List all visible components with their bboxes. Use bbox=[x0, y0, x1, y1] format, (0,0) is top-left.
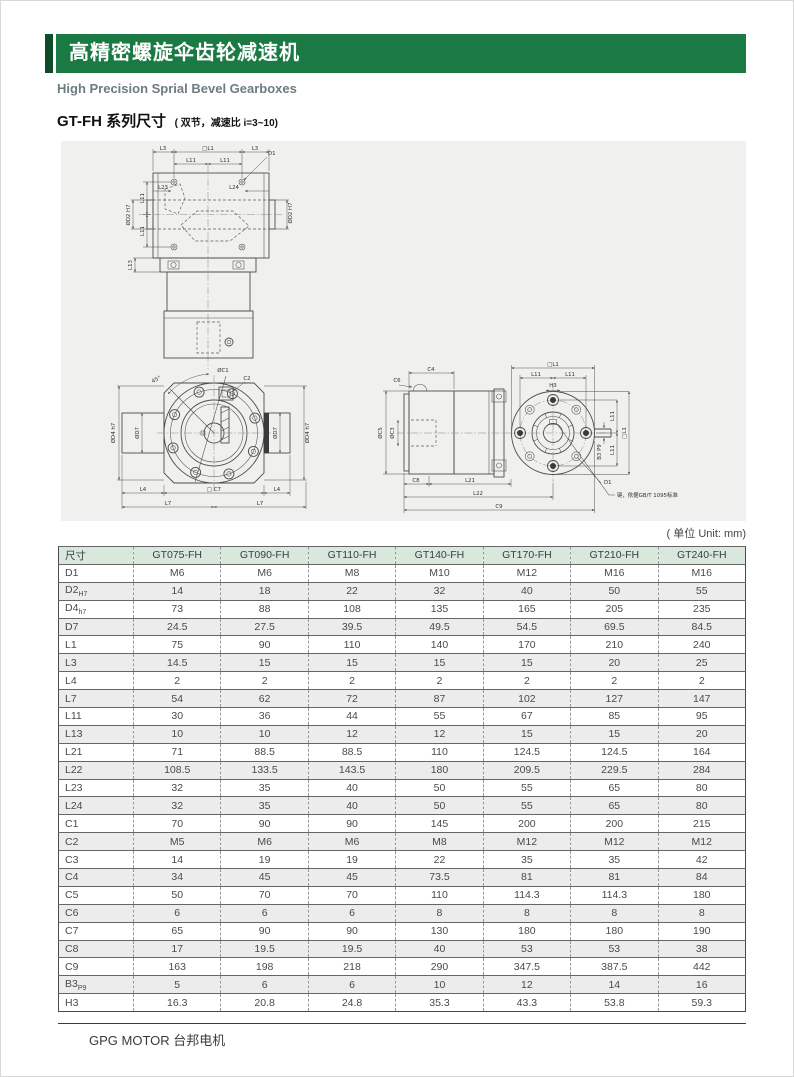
dimension-value: M16 bbox=[658, 564, 745, 582]
dimension-value: 40 bbox=[396, 940, 483, 958]
dimension-value: 53.8 bbox=[571, 994, 658, 1012]
dimension-value: 124.5 bbox=[483, 743, 570, 761]
dimension-value: 6 bbox=[221, 976, 308, 994]
table-header-row: 尺寸GT075-FHGT090-FHGT110-FHGT140-FHGT170-… bbox=[59, 547, 746, 565]
dimension-value: 73 bbox=[134, 600, 221, 618]
dimension-value: 14 bbox=[134, 851, 221, 869]
dimension-value: 15 bbox=[221, 654, 308, 672]
dimension-value: 235 bbox=[658, 600, 745, 618]
table-row: L754627287102127147 bbox=[59, 690, 746, 708]
dimension-value: 84.5 bbox=[658, 618, 745, 636]
dimension-value: 35 bbox=[483, 851, 570, 869]
dim-l11-top-left: L11 bbox=[531, 372, 541, 378]
dimension-value: 84 bbox=[658, 869, 745, 887]
dimension-value: 19.5 bbox=[221, 940, 308, 958]
dimension-table-wrap: 尺寸GT075-FHGT090-FHGT110-FHGT140-FHGT170-… bbox=[58, 546, 746, 1012]
table-row: D724.527.539.549.554.569.584.5 bbox=[59, 618, 746, 636]
dimension-value: 2 bbox=[483, 672, 570, 690]
dimension-value: 49.5 bbox=[396, 618, 483, 636]
top-view: L3 □L1 L3 D1 L11 L11 L23 L24 L11 bbox=[125, 146, 294, 369]
dimension-value: 130 bbox=[396, 922, 483, 940]
dimension-value: 200 bbox=[483, 815, 570, 833]
dimension-value: 32 bbox=[396, 582, 483, 600]
dimension-value: 90 bbox=[221, 922, 308, 940]
dimension-value: 16 bbox=[658, 976, 745, 994]
column-header-model: GT210-FH bbox=[571, 547, 658, 565]
dimension-value: 114.3 bbox=[483, 886, 570, 904]
table-row: D2H714182232405055 bbox=[59, 582, 746, 600]
dimension-value: 8 bbox=[658, 904, 745, 922]
dimension-value: 72 bbox=[308, 690, 395, 708]
dimension-label: C1 bbox=[59, 815, 134, 833]
column-header-model: GT110-FH bbox=[308, 547, 395, 565]
dimension-value: 8 bbox=[571, 904, 658, 922]
table-row: L217188.588.5110124.5124.5164 bbox=[59, 743, 746, 761]
dimension-label: D1 bbox=[59, 564, 134, 582]
dimension-label: H3 bbox=[59, 994, 134, 1012]
dimension-value: 102 bbox=[483, 690, 570, 708]
dimension-label: C9 bbox=[59, 958, 134, 976]
dim-l4-right: L4 bbox=[274, 487, 281, 493]
dimension-value: 55 bbox=[396, 708, 483, 726]
dimension-value: 88.5 bbox=[221, 743, 308, 761]
dimension-value: 18 bbox=[221, 582, 308, 600]
dimension-value: 39.5 bbox=[308, 618, 395, 636]
section-note: ( 双节，减速比 i=3~10) bbox=[175, 118, 278, 129]
dimension-value: 12 bbox=[308, 725, 395, 743]
dimension-value: 32 bbox=[134, 779, 221, 797]
dimension-value: 2 bbox=[221, 672, 308, 690]
dimension-value: 124.5 bbox=[571, 743, 658, 761]
unit-note: ( 单位 Unit: mm) bbox=[61, 525, 746, 541]
dimension-value: 38 bbox=[658, 940, 745, 958]
dimension-label: C4 bbox=[59, 869, 134, 887]
dimension-value: 55 bbox=[483, 797, 570, 815]
dimension-value: M6 bbox=[134, 564, 221, 582]
dimension-value: 180 bbox=[396, 761, 483, 779]
dimension-value: 54 bbox=[134, 690, 221, 708]
dim-d4-left: ØD4 h7 bbox=[110, 423, 117, 443]
dimension-label: D2H7 bbox=[59, 582, 134, 600]
dimension-value: 387.5 bbox=[571, 958, 658, 976]
dim-l11-right-lower: L11 bbox=[610, 445, 616, 455]
dimension-value: 55 bbox=[658, 582, 745, 600]
dimension-value: M6 bbox=[221, 833, 308, 851]
dim-45deg: 45° bbox=[151, 375, 163, 385]
dimension-value: 62 bbox=[221, 690, 308, 708]
dimension-label: L13 bbox=[59, 725, 134, 743]
dim-c4: C4 bbox=[427, 367, 435, 373]
dimension-value: 190 bbox=[658, 922, 745, 940]
table-row: C434454573.5818184 bbox=[59, 869, 746, 887]
column-header-model: GT090-FH bbox=[221, 547, 308, 565]
section-heading: GT-FH 系列尺寸 ( 双节，减速比 i=3~10) bbox=[57, 110, 278, 131]
dimension-value: 135 bbox=[396, 600, 483, 618]
dimension-value: 110 bbox=[396, 886, 483, 904]
key-standard-note: 键，依据GB/T 1095标准 bbox=[617, 491, 678, 499]
dimension-value: 25 bbox=[658, 654, 745, 672]
table-row: B3P956610121416 bbox=[59, 976, 746, 994]
dimension-value: 70 bbox=[134, 815, 221, 833]
table-row: H316.320.824.835.343.353.859.3 bbox=[59, 994, 746, 1012]
dimension-value: 10 bbox=[396, 976, 483, 994]
dimension-value: 65 bbox=[134, 922, 221, 940]
dimension-label: L1 bbox=[59, 636, 134, 654]
dimension-value: 73.5 bbox=[396, 869, 483, 887]
dim-d4-right: ØD4 h7 bbox=[304, 423, 311, 443]
table-row: C81719.519.540535338 bbox=[59, 940, 746, 958]
table-row: L1130364455678595 bbox=[59, 708, 746, 726]
dimension-value: 19.5 bbox=[308, 940, 395, 958]
dimension-value: 108 bbox=[308, 600, 395, 618]
dimension-value: 70 bbox=[221, 886, 308, 904]
dim-l13: L13 bbox=[128, 260, 134, 270]
dimension-value: M12 bbox=[483, 833, 570, 851]
dimension-label: L7 bbox=[59, 690, 134, 708]
dimension-value: 2 bbox=[134, 672, 221, 690]
dimension-value: 45 bbox=[308, 869, 395, 887]
dimension-value: M12 bbox=[571, 833, 658, 851]
dimension-value: 6 bbox=[221, 904, 308, 922]
dimension-value: 81 bbox=[571, 869, 658, 887]
dim-c9: C9 bbox=[495, 504, 503, 510]
dimension-label: L4 bbox=[59, 672, 134, 690]
dimension-label: L21 bbox=[59, 743, 134, 761]
dim-c2: C2 bbox=[243, 376, 250, 382]
dimension-value: 2 bbox=[308, 672, 395, 690]
dimension-value: 75 bbox=[134, 636, 221, 654]
column-header-model: GT170-FH bbox=[483, 547, 570, 565]
footer-divider bbox=[58, 1023, 746, 1024]
dimension-value: 53 bbox=[571, 940, 658, 958]
dim-l21: L21 bbox=[465, 478, 475, 484]
side-view: C4 C6 □L1 L11 L11 H3 ØC5 bbox=[377, 362, 678, 513]
dim-l1-square-right: □L1 bbox=[622, 427, 628, 439]
dimension-value: 15 bbox=[571, 725, 658, 743]
dimension-label: L3 bbox=[59, 654, 134, 672]
dim-c5: ØC5 bbox=[377, 427, 384, 438]
dimension-value: 205 bbox=[571, 600, 658, 618]
dimension-value: 16.3 bbox=[134, 994, 221, 1012]
dimension-value: 12 bbox=[396, 725, 483, 743]
dimension-value: 27.5 bbox=[221, 618, 308, 636]
dimension-label: C2 bbox=[59, 833, 134, 851]
dimension-value: 240 bbox=[658, 636, 745, 654]
dimension-value: 114.3 bbox=[571, 886, 658, 904]
page-subtitle: High Precision Sprial Bevel Gearboxes bbox=[57, 81, 297, 96]
dimension-value: 215 bbox=[658, 815, 745, 833]
dimension-value: 88 bbox=[221, 600, 308, 618]
table-row: C66668888 bbox=[59, 904, 746, 922]
dimension-value: 80 bbox=[658, 797, 745, 815]
dim-l11-top-left: L11 bbox=[186, 158, 196, 164]
dimension-value: 69.5 bbox=[571, 618, 658, 636]
dimension-value: 12 bbox=[483, 976, 570, 994]
technical-drawings: L3 □L1 L3 D1 L11 L11 L23 L24 L11 bbox=[61, 141, 746, 521]
dimension-value: M6 bbox=[308, 833, 395, 851]
spec-table-body: D1M6M6M8M10M12M16M16D2H714182232405055D4… bbox=[59, 564, 746, 1011]
dim-l24: L24 bbox=[229, 185, 239, 191]
dimension-value: 20.8 bbox=[221, 994, 308, 1012]
dim-l7-right: L7 bbox=[257, 501, 263, 507]
dim-l4-left: L4 bbox=[140, 487, 147, 493]
dimension-label: C8 bbox=[59, 940, 134, 958]
dimension-value: 170 bbox=[483, 636, 570, 654]
dim-d7-right: ØD7 bbox=[272, 427, 279, 439]
dim-c1: ØC1 bbox=[217, 367, 228, 374]
dimension-value: 8 bbox=[483, 904, 570, 922]
dimension-value: 30 bbox=[134, 708, 221, 726]
dimension-value: 108.5 bbox=[134, 761, 221, 779]
table-row: L314.5151515152025 bbox=[59, 654, 746, 672]
dimension-value: M5 bbox=[134, 833, 221, 851]
column-header-model: GT240-FH bbox=[658, 547, 745, 565]
dimension-label: L22 bbox=[59, 761, 134, 779]
dimension-label: D4h7 bbox=[59, 600, 134, 618]
dimension-value: 44 bbox=[308, 708, 395, 726]
dimension-value: 164 bbox=[658, 743, 745, 761]
dim-d2-right: ØD2 H7 bbox=[287, 202, 294, 223]
dimension-value: M6 bbox=[221, 564, 308, 582]
table-row: C5507070110114.3114.3180 bbox=[59, 886, 746, 904]
dimension-value: 53 bbox=[483, 940, 570, 958]
dim-d7-left: ØD7 bbox=[134, 427, 141, 439]
dimension-value: 14.5 bbox=[134, 654, 221, 672]
dimension-value: M10 bbox=[396, 564, 483, 582]
dimension-value: 88.5 bbox=[308, 743, 395, 761]
dimension-value: 59.3 bbox=[658, 994, 745, 1012]
dimension-label: B3P9 bbox=[59, 976, 134, 994]
dimension-value: 43.3 bbox=[483, 994, 570, 1012]
dimension-value: 143.5 bbox=[308, 761, 395, 779]
dimension-value: 198 bbox=[221, 958, 308, 976]
dimension-value: M12 bbox=[658, 833, 745, 851]
dim-l11-right-upper: L11 bbox=[610, 411, 616, 421]
dimension-value: 42 bbox=[658, 851, 745, 869]
dimension-label: C7 bbox=[59, 922, 134, 940]
dimension-value: 210 bbox=[571, 636, 658, 654]
dimension-value: 65 bbox=[571, 797, 658, 815]
table-row: D1M6M6M8M10M12M16M16 bbox=[59, 564, 746, 582]
dimension-value: 284 bbox=[658, 761, 745, 779]
dimension-value: 40 bbox=[308, 779, 395, 797]
dimension-value: 8 bbox=[396, 904, 483, 922]
dim-c3: ØC3 bbox=[389, 427, 396, 438]
dimension-value: 2 bbox=[571, 672, 658, 690]
dim-l7-left: L7 bbox=[165, 501, 171, 507]
dimension-value: 81 bbox=[483, 869, 570, 887]
table-row: L17590110140170210240 bbox=[59, 636, 746, 654]
dimension-value: 165 bbox=[483, 600, 570, 618]
dimension-value: M8 bbox=[308, 564, 395, 582]
dimension-value: 71 bbox=[134, 743, 221, 761]
dimension-table: 尺寸GT075-FHGT090-FHGT110-FHGT140-FHGT170-… bbox=[58, 546, 746, 1012]
front-view: 45° ØC1 C2 ØD7 ØD4 h7 ØD7 bbox=[110, 367, 311, 509]
dimension-value: 140 bbox=[396, 636, 483, 654]
dimension-value: 90 bbox=[221, 636, 308, 654]
dimension-value: 45 bbox=[221, 869, 308, 887]
dimension-value: 85 bbox=[571, 708, 658, 726]
dimension-value: 229.5 bbox=[571, 761, 658, 779]
dimension-value: 90 bbox=[221, 815, 308, 833]
dimension-value: 133.5 bbox=[221, 761, 308, 779]
dimension-value: 6 bbox=[134, 904, 221, 922]
dim-l11-left-upper: L11 bbox=[140, 193, 146, 203]
dimension-value: 20 bbox=[658, 725, 745, 743]
dimension-value: 347.5 bbox=[483, 958, 570, 976]
section-title: GT-FH 系列尺寸 bbox=[57, 113, 166, 130]
table-row: L2432354050556580 bbox=[59, 797, 746, 815]
dimension-value: 290 bbox=[396, 958, 483, 976]
dimension-label: L23 bbox=[59, 779, 134, 797]
dimension-value: 65 bbox=[571, 779, 658, 797]
dimension-value: 6 bbox=[308, 904, 395, 922]
dimension-value: 15 bbox=[483, 725, 570, 743]
dimension-value: 35 bbox=[571, 851, 658, 869]
dimension-value: 15 bbox=[396, 654, 483, 672]
column-header-model: GT140-FH bbox=[396, 547, 483, 565]
dimension-value: 20 bbox=[571, 654, 658, 672]
dimension-value: 95 bbox=[658, 708, 745, 726]
dimension-value: 40 bbox=[483, 582, 570, 600]
dimension-label: L24 bbox=[59, 797, 134, 815]
dim-d2-left: ØD2 H7 bbox=[125, 204, 132, 225]
dimension-value: 442 bbox=[658, 958, 745, 976]
dimension-value: 6 bbox=[308, 976, 395, 994]
footer-brand: GPG MOTOR 台邦电机 bbox=[89, 1030, 225, 1049]
dimension-value: 24.8 bbox=[308, 994, 395, 1012]
dimension-value: 50 bbox=[134, 886, 221, 904]
dimension-value: 90 bbox=[308, 815, 395, 833]
dimension-label: C3 bbox=[59, 851, 134, 869]
dimension-value: 50 bbox=[571, 582, 658, 600]
dim-l3-right: L3 bbox=[252, 146, 258, 152]
dimension-value: 163 bbox=[134, 958, 221, 976]
dimension-value: 10 bbox=[134, 725, 221, 743]
dimension-value: 110 bbox=[308, 636, 395, 654]
dimension-value: 70 bbox=[308, 886, 395, 904]
dimension-value: 19 bbox=[221, 851, 308, 869]
dimension-value: 127 bbox=[571, 690, 658, 708]
table-row: L22108.5133.5143.5180209.5229.5284 bbox=[59, 761, 746, 779]
dimension-value: 54.5 bbox=[483, 618, 570, 636]
dimension-value: 15 bbox=[483, 654, 570, 672]
catalog-page: 高精密螺旋伞齿轮减速机 High Precision Sprial Bevel … bbox=[0, 0, 794, 1077]
dimension-value: M8 bbox=[396, 833, 483, 851]
dim-c8: C8 bbox=[412, 478, 420, 484]
dimension-value: 22 bbox=[396, 851, 483, 869]
dimension-value: 90 bbox=[308, 922, 395, 940]
dimension-value: 14 bbox=[134, 582, 221, 600]
dimension-value: 200 bbox=[571, 815, 658, 833]
dimension-value: 55 bbox=[483, 779, 570, 797]
table-row: C9163198218290347.5387.5442 bbox=[59, 958, 746, 976]
dimension-value: 147 bbox=[658, 690, 745, 708]
dimension-label: C5 bbox=[59, 886, 134, 904]
dim-d1-top: D1 bbox=[268, 151, 276, 157]
dim-l11-left-lower: L11 bbox=[140, 226, 146, 236]
dimension-value: M16 bbox=[571, 564, 658, 582]
dimension-label: L11 bbox=[59, 708, 134, 726]
column-header-dim: 尺寸 bbox=[59, 547, 134, 565]
table-row: D4h77388108135165205235 bbox=[59, 600, 746, 618]
dimension-value: 32 bbox=[134, 797, 221, 815]
dimension-value: 40 bbox=[308, 797, 395, 815]
dimension-value: 19 bbox=[308, 851, 395, 869]
table-row: L42222222 bbox=[59, 672, 746, 690]
dimension-value: 22 bbox=[308, 582, 395, 600]
table-row: C2M5M6M6M8M12M12M12 bbox=[59, 833, 746, 851]
page-title: 高精密螺旋伞齿轮减速机 bbox=[56, 34, 746, 73]
dimension-value: 5 bbox=[134, 976, 221, 994]
dimension-value: 180 bbox=[571, 922, 658, 940]
dimension-value: 50 bbox=[396, 797, 483, 815]
dimension-value: 180 bbox=[658, 886, 745, 904]
dimension-value: 2 bbox=[658, 672, 745, 690]
dim-c6: C6 bbox=[393, 378, 401, 384]
dimension-value: 15 bbox=[308, 654, 395, 672]
dim-h3: H3 bbox=[549, 383, 556, 389]
dimension-value: 35 bbox=[221, 779, 308, 797]
table-row: C314191922353542 bbox=[59, 851, 746, 869]
dimension-value: 14 bbox=[571, 976, 658, 994]
dim-l1-square-top: □L1 bbox=[547, 362, 559, 368]
dimension-label: C6 bbox=[59, 904, 134, 922]
dimension-value: 35.3 bbox=[396, 994, 483, 1012]
dimension-value: 180 bbox=[483, 922, 570, 940]
dimension-value: 34 bbox=[134, 869, 221, 887]
dimension-value: 145 bbox=[396, 815, 483, 833]
dimension-label: D7 bbox=[59, 618, 134, 636]
table-row: L1310101212151520 bbox=[59, 725, 746, 743]
dim-l11-top-right: L11 bbox=[220, 158, 230, 164]
header-accent-bar bbox=[45, 34, 53, 73]
dimension-value: 2 bbox=[396, 672, 483, 690]
dim-l11-top-right: L11 bbox=[565, 372, 575, 378]
dim-d1-side: D1 bbox=[604, 480, 612, 486]
dimension-value: 24.5 bbox=[134, 618, 221, 636]
dimension-value: M12 bbox=[483, 564, 570, 582]
dimension-value: 218 bbox=[308, 958, 395, 976]
dimension-value: 87 bbox=[396, 690, 483, 708]
dim-l23: L23 bbox=[158, 185, 168, 191]
dim-l22: L22 bbox=[473, 491, 483, 497]
dim-l3-left: L3 bbox=[160, 146, 166, 152]
table-row: L2332354050556580 bbox=[59, 779, 746, 797]
dim-l1-square: □L1 bbox=[202, 146, 214, 152]
dimension-value: 80 bbox=[658, 779, 745, 797]
dim-b3: B3 P9 bbox=[597, 444, 603, 460]
dimension-value: 67 bbox=[483, 708, 570, 726]
dimension-value: 110 bbox=[396, 743, 483, 761]
drawing-panel: L3 □L1 L3 D1 L11 L11 L23 L24 L11 bbox=[61, 141, 746, 521]
dim-c7: □ C7 bbox=[207, 487, 221, 493]
dimension-value: 209.5 bbox=[483, 761, 570, 779]
dimension-value: 17 bbox=[134, 940, 221, 958]
table-row: C1709090145200200215 bbox=[59, 815, 746, 833]
dimension-value: 35 bbox=[221, 797, 308, 815]
dimension-value: 10 bbox=[221, 725, 308, 743]
column-header-model: GT075-FH bbox=[134, 547, 221, 565]
dimension-value: 50 bbox=[396, 779, 483, 797]
dimension-value: 36 bbox=[221, 708, 308, 726]
table-row: C7659090130180180190 bbox=[59, 922, 746, 940]
